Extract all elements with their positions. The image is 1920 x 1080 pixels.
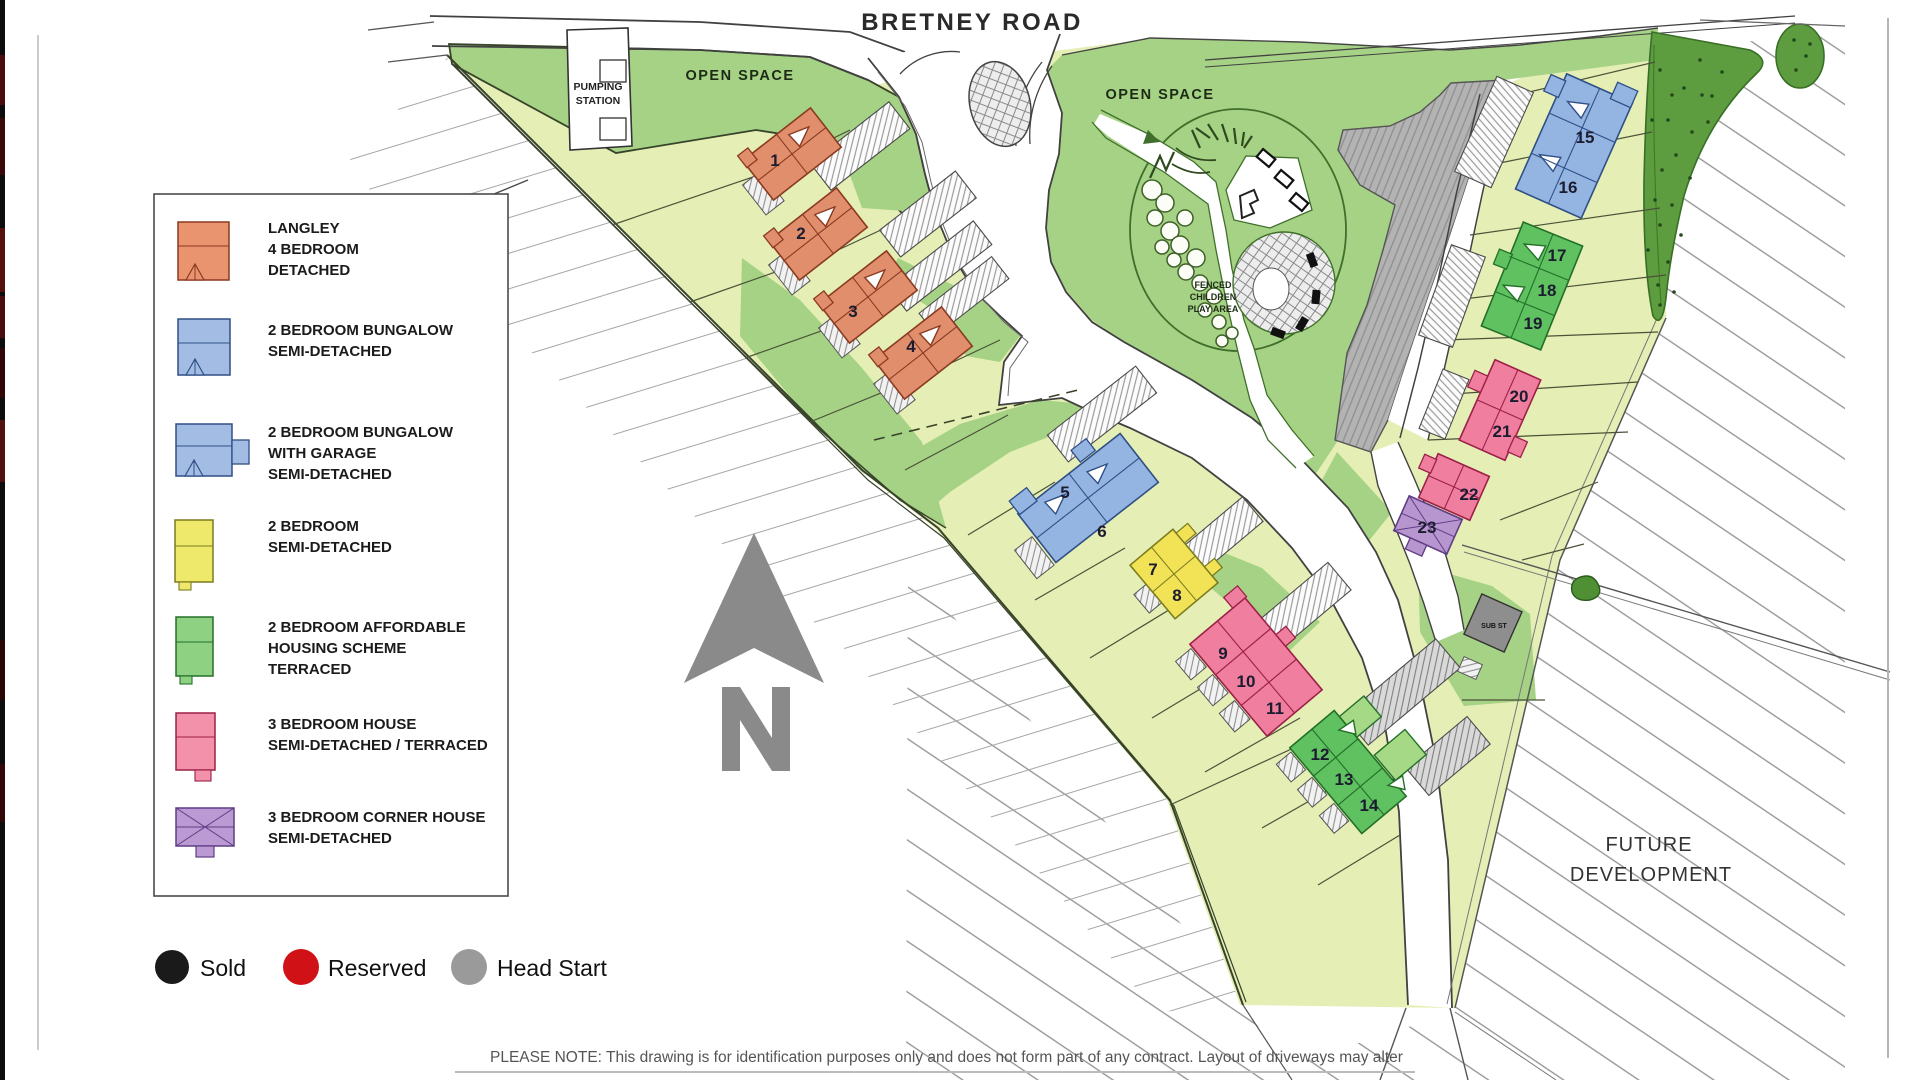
svg-text:SEMI-DETACHED: SEMI-DETACHED [268, 466, 392, 483]
svg-text:19: 19 [1524, 314, 1543, 333]
svg-text:FENCED: FENCED [1194, 280, 1232, 290]
svg-text:23: 23 [1418, 518, 1437, 537]
svg-text:5: 5 [1060, 483, 1069, 502]
svg-text:2 BEDROOM BUNGALOW: 2 BEDROOM BUNGALOW [268, 424, 454, 441]
svg-text:Head Start: Head Start [497, 955, 608, 981]
svg-text:11: 11 [1266, 699, 1284, 718]
svg-text:PLAY AREA: PLAY AREA [1188, 304, 1239, 314]
svg-text:Sold: Sold [200, 955, 246, 981]
svg-text:2 BEDROOM AFFORDABLE: 2 BEDROOM AFFORDABLE [268, 619, 466, 636]
svg-text:TERRACED: TERRACED [268, 661, 352, 678]
svg-text:4 BEDROOM: 4 BEDROOM [268, 241, 359, 258]
svg-text:2: 2 [796, 224, 805, 243]
svg-text:PUMPING: PUMPING [573, 81, 622, 93]
svg-text:7: 7 [1148, 560, 1157, 579]
svg-text:STATION: STATION [576, 95, 621, 107]
svg-text:14: 14 [1360, 796, 1379, 815]
svg-text:SUB ST: SUB ST [1481, 623, 1507, 630]
svg-text:4: 4 [906, 337, 916, 356]
svg-text:9: 9 [1218, 644, 1227, 663]
svg-text:1: 1 [770, 151, 779, 170]
svg-text:BRETNEY ROAD: BRETNEY ROAD [861, 9, 1083, 36]
svg-text:DEVELOPMENT: DEVELOPMENT [1570, 864, 1732, 886]
svg-text:21: 21 [1493, 422, 1512, 441]
svg-text:15: 15 [1576, 128, 1595, 147]
svg-text:HOUSING SCHEME: HOUSING SCHEME [268, 640, 406, 657]
svg-text:3 BEDROOM HOUSE: 3 BEDROOM HOUSE [268, 716, 416, 733]
svg-text:3: 3 [848, 302, 857, 321]
svg-text:SEMI-DETACHED: SEMI-DETACHED [268, 343, 392, 360]
svg-text:2 BEDROOM BUNGALOW: 2 BEDROOM BUNGALOW [268, 322, 454, 339]
svg-text:LANGLEY: LANGLEY [268, 220, 340, 237]
svg-text:3 BEDROOM CORNER HOUSE: 3 BEDROOM CORNER HOUSE [268, 809, 486, 826]
svg-text:OPEN SPACE: OPEN SPACE [1105, 87, 1214, 103]
svg-text:SEMI-DETACHED: SEMI-DETACHED [268, 539, 392, 556]
svg-text:13: 13 [1335, 770, 1354, 789]
svg-text:16: 16 [1559, 178, 1578, 197]
svg-text:PLEASE NOTE: This drawing is f: PLEASE NOTE: This drawing is for identif… [490, 1049, 1403, 1066]
svg-text:10: 10 [1237, 672, 1256, 691]
svg-text:DETACHED: DETACHED [268, 262, 350, 279]
svg-text:22: 22 [1460, 485, 1479, 504]
svg-text:20: 20 [1510, 387, 1529, 406]
svg-text:WITH GARAGE: WITH GARAGE [268, 445, 376, 462]
svg-text:SEMI-DETACHED / TERRACED: SEMI-DETACHED / TERRACED [268, 737, 488, 754]
svg-text:OPEN SPACE: OPEN SPACE [685, 68, 794, 84]
svg-text:6: 6 [1097, 522, 1106, 541]
svg-text:2 BEDROOM: 2 BEDROOM [268, 518, 359, 535]
svg-text:8: 8 [1172, 586, 1181, 605]
svg-text:17: 17 [1548, 246, 1567, 265]
svg-text:18: 18 [1538, 281, 1557, 300]
svg-text:12: 12 [1311, 745, 1330, 764]
svg-text:Reserved: Reserved [328, 955, 426, 981]
svg-text:FUTURE: FUTURE [1605, 834, 1692, 856]
svg-text:CHILDREN: CHILDREN [1190, 292, 1237, 302]
svg-text:SEMI-DETACHED: SEMI-DETACHED [268, 830, 392, 847]
